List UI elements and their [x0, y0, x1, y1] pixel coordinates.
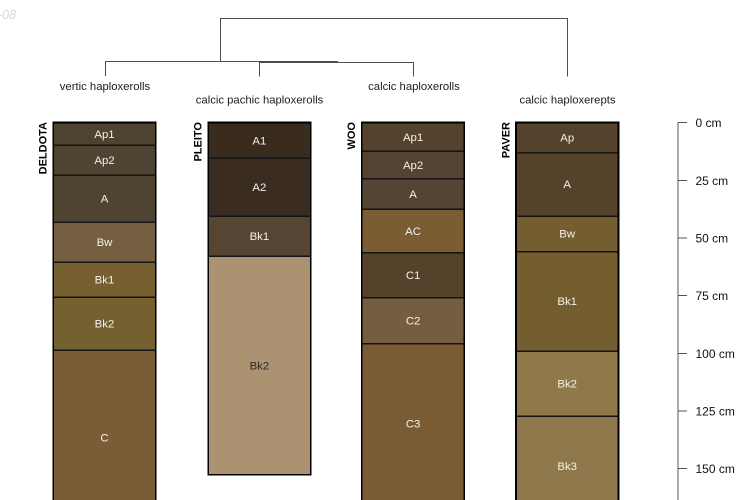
svg-text:vertic haploxerolls: vertic haploxerolls: [60, 81, 151, 93]
svg-text:Bk2: Bk2: [250, 361, 270, 373]
svg-text:A: A: [563, 179, 571, 191]
svg-text:C: C: [100, 433, 108, 445]
svg-text:Ap: Ap: [560, 132, 574, 144]
svg-text:Bk2: Bk2: [557, 378, 577, 390]
svg-text:A: A: [101, 194, 109, 206]
svg-text:Bk1: Bk1: [250, 231, 270, 243]
svg-text:Bw: Bw: [559, 229, 576, 241]
svg-text:WOO: WOO: [346, 122, 358, 150]
svg-text:PAVER: PAVER: [500, 122, 512, 158]
svg-text:Bk2: Bk2: [95, 319, 115, 331]
svg-text:C3: C3: [406, 419, 421, 431]
svg-text:calcic haploxerolls: calcic haploxerolls: [368, 81, 460, 93]
svg-text:150 cm: 150 cm: [696, 462, 735, 476]
svg-text:100 cm: 100 cm: [696, 347, 735, 361]
svg-text:125 cm: 125 cm: [696, 404, 735, 418]
svg-text:Ap2: Ap2: [94, 155, 114, 167]
svg-text:DELDOTA: DELDOTA: [38, 122, 50, 174]
svg-text:0 cm: 0 cm: [696, 116, 722, 130]
svg-text:Ap2: Ap2: [403, 160, 423, 172]
svg-text:A: A: [409, 189, 417, 201]
svg-text:Bk1: Bk1: [557, 296, 577, 308]
svg-text:PLEITO: PLEITO: [193, 122, 205, 162]
svg-text:Bk1: Bk1: [95, 275, 115, 287]
svg-text:A1: A1: [252, 135, 266, 147]
svg-text:calcic haploxerepts: calcic haploxerepts: [519, 94, 615, 106]
svg-text:AC: AC: [405, 226, 421, 238]
svg-text:Bw: Bw: [97, 237, 114, 249]
svg-text:Bk3: Bk3: [557, 461, 577, 473]
svg-text:-08: -08: [0, 8, 16, 22]
svg-text:C1: C1: [406, 270, 421, 282]
svg-text:25 cm: 25 cm: [696, 174, 729, 188]
svg-text:75 cm: 75 cm: [696, 289, 729, 303]
svg-text:50 cm: 50 cm: [696, 231, 729, 245]
svg-text:Ap1: Ap1: [94, 129, 114, 141]
svg-text:A2: A2: [252, 182, 266, 194]
svg-text:C2: C2: [406, 316, 421, 328]
svg-text:Ap1: Ap1: [403, 132, 423, 144]
svg-text:calcic pachic haploxerolls: calcic pachic haploxerolls: [196, 95, 324, 107]
